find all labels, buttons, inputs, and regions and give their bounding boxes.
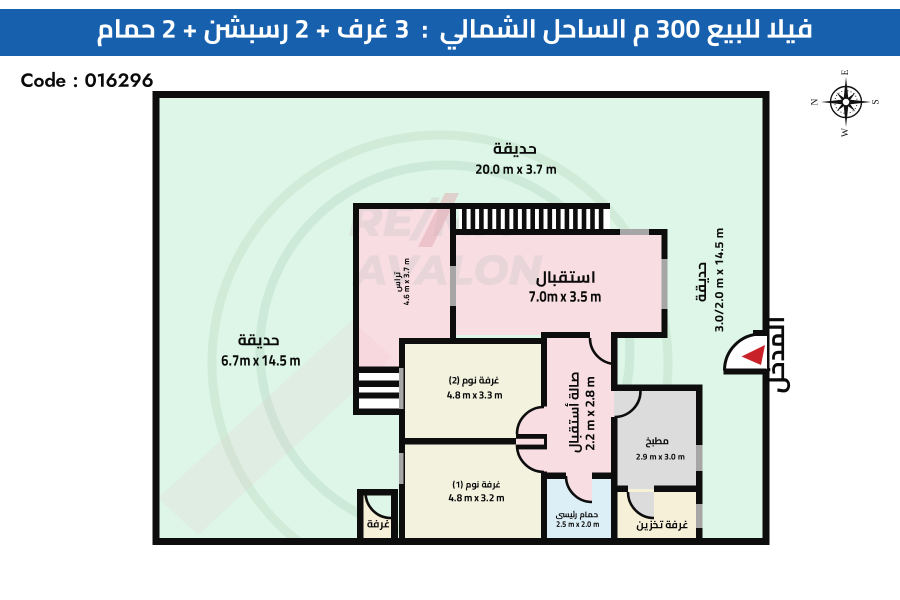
svg-text:E: E <box>841 69 851 75</box>
svg-text:W: W <box>841 128 851 137</box>
svg-text:N: N <box>811 98 821 105</box>
svg-text:S: S <box>872 99 882 104</box>
